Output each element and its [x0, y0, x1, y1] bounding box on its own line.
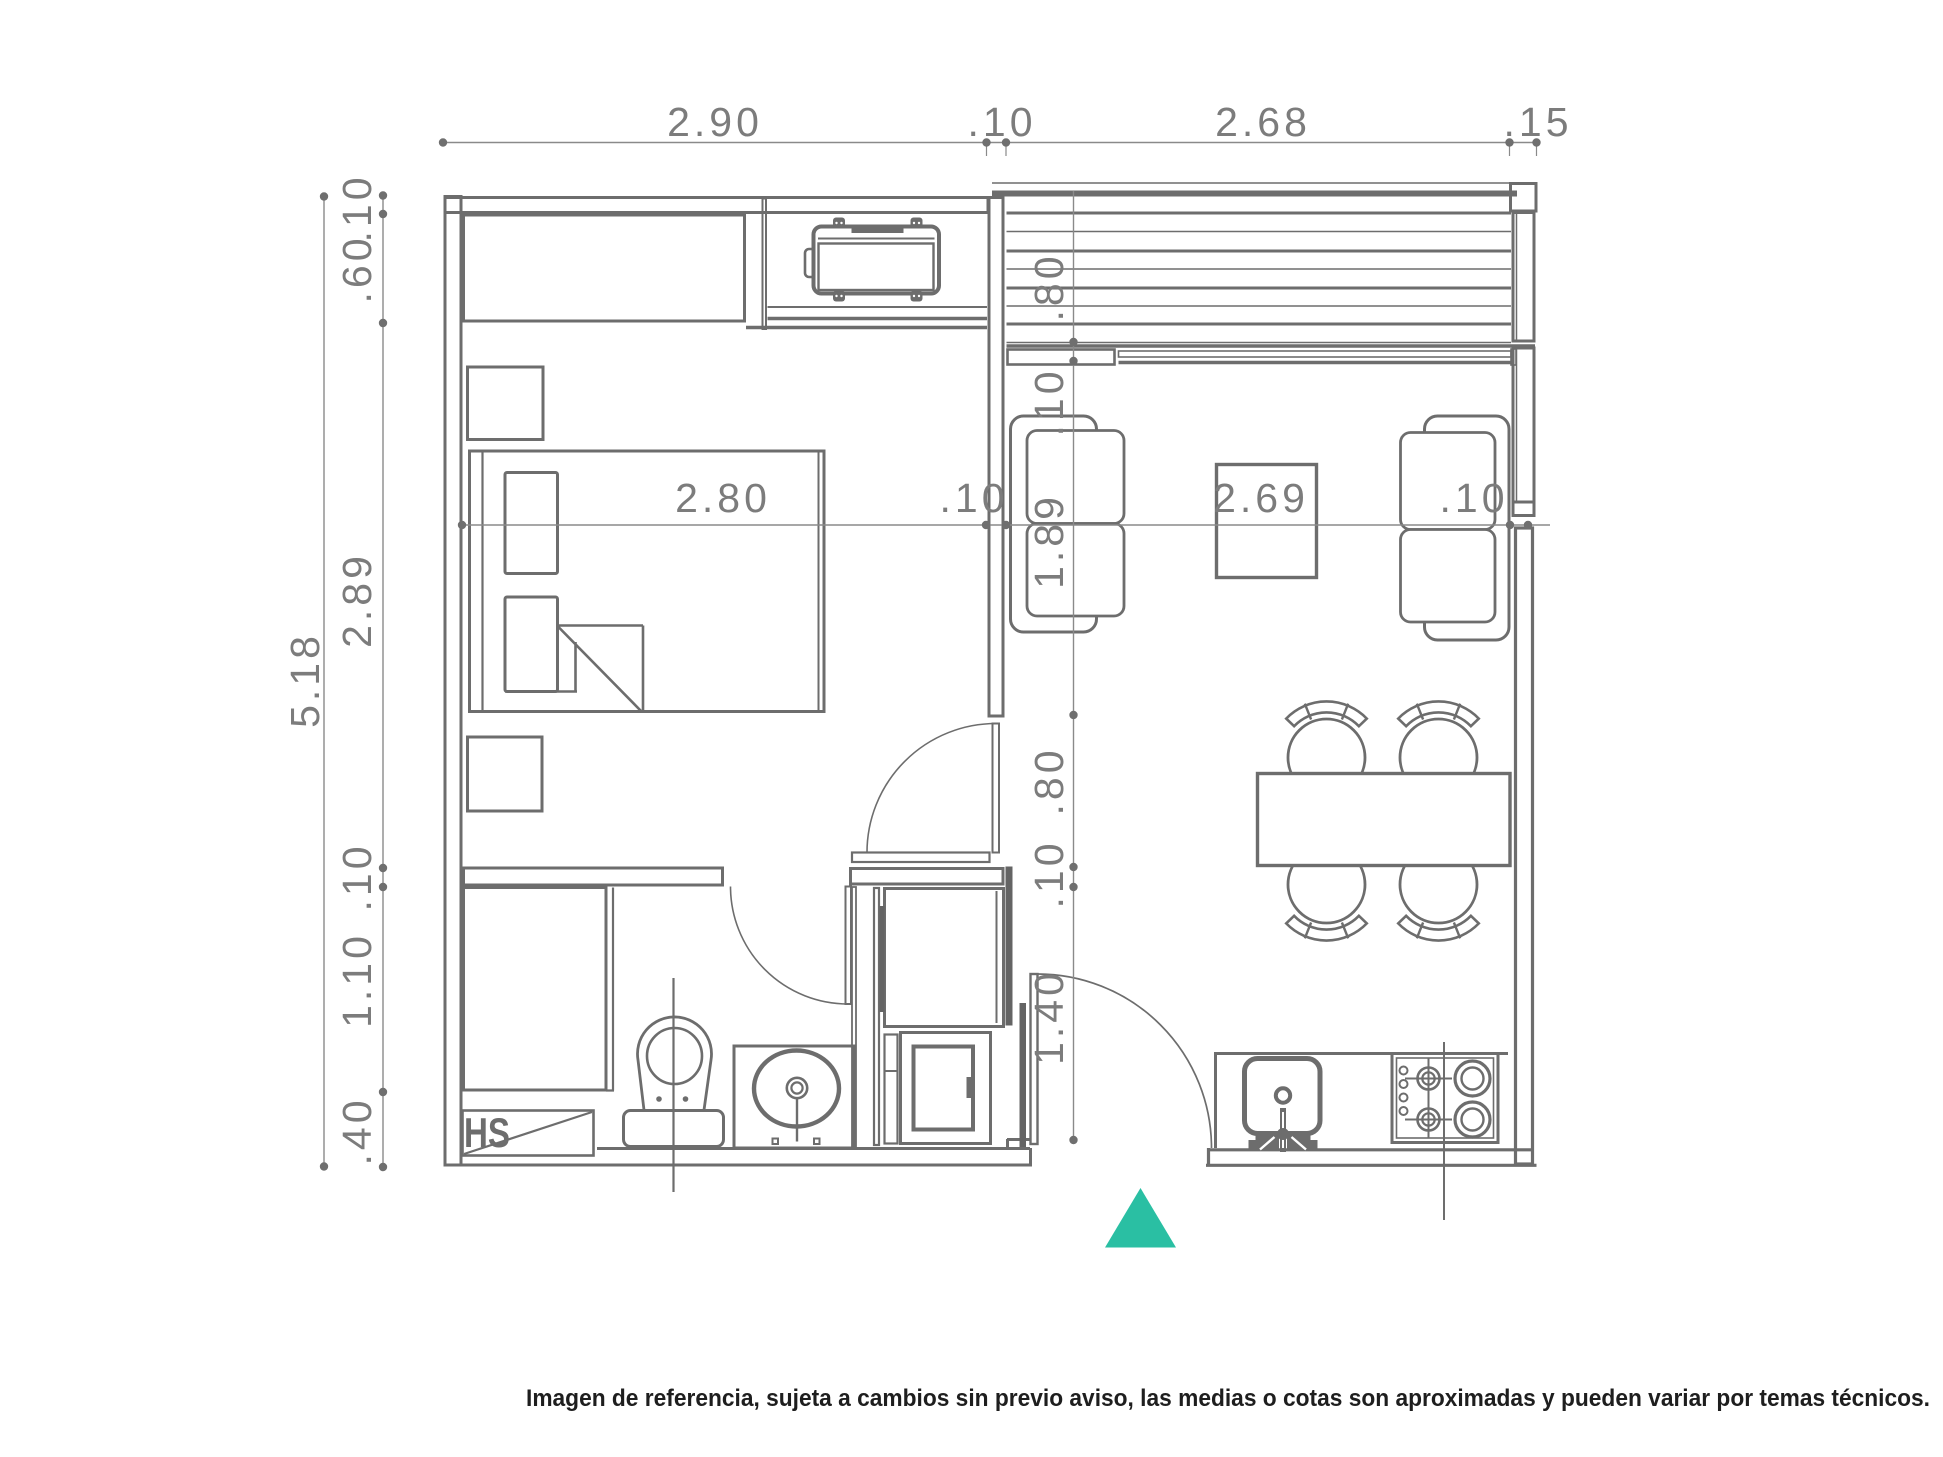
svg-text:2.90: 2.90 [667, 99, 763, 145]
svg-text:2.69: 2.69 [1213, 475, 1309, 521]
svg-text:2.68: 2.68 [1215, 99, 1311, 145]
svg-text:.15: .15 [1504, 99, 1573, 145]
svg-text:.10: .10 [940, 475, 1009, 521]
svg-text:2.80: 2.80 [675, 475, 771, 521]
svg-text:1.10: 1.10 [334, 932, 380, 1028]
svg-text:.10: .10 [1440, 475, 1509, 521]
svg-text:5.18: 5.18 [282, 632, 328, 728]
svg-text:.40: .40 [334, 1097, 380, 1166]
svg-text:Imagen de referencia, sujeta a: Imagen de referencia, sujeta a cambios s… [526, 1385, 1930, 1412]
svg-text:.80: .80 [1026, 253, 1072, 322]
svg-text:1.40: 1.40 [1026, 969, 1072, 1065]
svg-text:.10: .10 [334, 843, 380, 912]
svg-text:HS: HS [464, 1109, 510, 1156]
svg-text:.80: .80 [1026, 747, 1072, 816]
svg-text:.10: .10 [968, 99, 1037, 145]
svg-text:.10: .10 [334, 174, 380, 243]
svg-text:1.89: 1.89 [1026, 493, 1072, 589]
svg-text:.10: .10 [1026, 368, 1072, 437]
svg-text:.10: .10 [1026, 840, 1072, 909]
svg-text:2.89: 2.89 [334, 552, 380, 648]
svg-text:.60: .60 [334, 235, 380, 304]
